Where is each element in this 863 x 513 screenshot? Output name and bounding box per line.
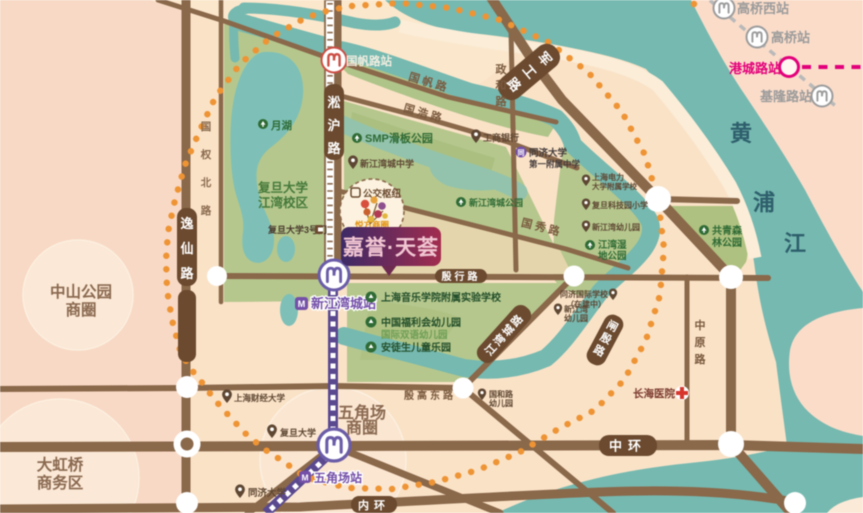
svg-text:复旦科技园小学: 复旦科技园小学 — [591, 200, 648, 210]
svg-text:内环: 内环 — [358, 498, 390, 512]
svg-text:共青森: 共青森 — [712, 224, 743, 237]
svg-text:路: 路 — [327, 141, 341, 156]
svg-text:新江湾幼儿园: 新江湾幼儿园 — [592, 222, 640, 232]
svg-text:上海电力: 上海电力 — [592, 172, 624, 182]
svg-text:同济大学: 同济大学 — [248, 487, 287, 499]
svg-text:仙: 仙 — [180, 241, 193, 256]
svg-text:淞: 淞 — [327, 95, 340, 110]
svg-text:复旦大学: 复旦大学 — [257, 180, 309, 195]
svg-text:月湖: 月湖 — [270, 119, 292, 132]
svg-text:幼儿园: 幼儿园 — [564, 313, 588, 323]
svg-text:幼儿园: 幼儿园 — [489, 398, 513, 408]
svg-text:大虹桥: 大虹桥 — [37, 455, 84, 474]
svg-text:国和路: 国和路 — [489, 389, 514, 399]
svg-text:殷行路: 殷行路 — [442, 270, 481, 283]
svg-text:沪: 沪 — [327, 118, 340, 133]
svg-text:中国福利会幼儿园: 中国福利会幼儿园 — [381, 316, 461, 329]
svg-text:同: 同 — [518, 149, 525, 157]
svg-text:北: 北 — [201, 176, 212, 189]
svg-text:商圈: 商圈 — [346, 418, 378, 437]
svg-text:新江湾: 新江湾 — [564, 304, 588, 314]
svg-text:商务区: 商务区 — [37, 473, 84, 492]
svg-text:新江湾城公园: 新江湾城公园 — [469, 197, 523, 208]
svg-text:公交枢纽: 公交枢纽 — [363, 188, 402, 200]
svg-text:殷高东路: 殷高东路 — [404, 389, 456, 402]
svg-text:同济国际学校: 同济国际学校 — [560, 289, 609, 299]
svg-text:路: 路 — [180, 266, 194, 281]
svg-text:中环: 中环 — [609, 439, 647, 454]
svg-text:路: 路 — [695, 352, 707, 366]
svg-text:地公园: 地公园 — [598, 250, 627, 262]
svg-text:国: 国 — [201, 121, 212, 133]
svg-text:和: 和 — [496, 78, 507, 92]
svg-text:第一附属中学: 第一附属中学 — [529, 159, 581, 169]
svg-text:高桥站: 高桥站 — [771, 30, 810, 45]
svg-text:路: 路 — [496, 94, 508, 108]
svg-text:国帆路站: 国帆路站 — [346, 54, 392, 68]
svg-text:基隆路站: 基隆路站 — [759, 89, 812, 104]
svg-text:权: 权 — [200, 148, 212, 161]
svg-text:安徒生儿童乐园: 安徒生儿童乐园 — [381, 341, 451, 354]
svg-text:M: M — [301, 473, 308, 483]
svg-text:SMP滑板公园: SMP滑板公园 — [365, 131, 433, 145]
svg-text:江湾校区: 江湾校区 — [258, 195, 309, 210]
svg-text:黄: 黄 — [730, 121, 752, 146]
svg-text:商圈: 商圈 — [65, 300, 96, 319]
svg-text:林公园: 林公园 — [712, 236, 742, 249]
svg-text:政: 政 — [496, 62, 508, 76]
svg-text:港城路站: 港城路站 — [729, 61, 781, 76]
svg-text:原: 原 — [695, 336, 706, 349]
svg-text:浦: 浦 — [753, 190, 775, 215]
svg-text:M: M — [298, 299, 306, 309]
svg-text:长海医院: 长海医院 — [633, 387, 675, 400]
svg-text:工商银行: 工商银行 — [483, 132, 519, 143]
svg-text:江: 江 — [784, 231, 806, 256]
svg-text:上海财经大学: 上海财经大学 — [234, 393, 286, 403]
svg-text:路: 路 — [201, 204, 212, 217]
svg-text:逸: 逸 — [180, 216, 193, 231]
svg-text:新江湾城中学: 新江湾城中学 — [360, 158, 414, 169]
svg-text:中: 中 — [695, 318, 706, 332]
svg-text:上海音乐学院附属实验学校: 上海音乐学院附属实验学校 — [381, 291, 502, 304]
svg-text:高桥西站: 高桥西站 — [737, 1, 789, 16]
svg-text:嘉誉·天荟: 嘉誉·天荟 — [343, 236, 439, 260]
svg-text:五角场站: 五角场站 — [314, 470, 362, 485]
svg-text:江湾湿: 江湾湿 — [598, 239, 627, 251]
svg-text:同济大学: 同济大学 — [529, 147, 568, 159]
svg-text:大学附属学校: 大学附属学校 — [592, 181, 637, 191]
svg-text:中山公园: 中山公园 — [50, 282, 112, 301]
svg-text:国际双语幼儿园: 国际双语幼儿园 — [381, 329, 448, 341]
svg-text:复旦大学: 复旦大学 — [279, 427, 316, 438]
